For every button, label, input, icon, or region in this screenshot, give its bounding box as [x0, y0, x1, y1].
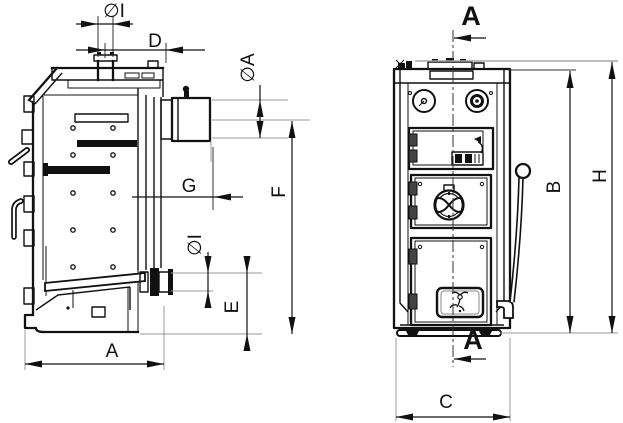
- dim-label-flue-offset: G: [182, 176, 197, 197]
- name-plate: [430, 71, 473, 79]
- air-intake-grille: [452, 152, 483, 165]
- front-view: [394, 30, 530, 367]
- hinge: [409, 249, 417, 264]
- section-marker-top: A: [461, 1, 481, 31]
- section-marker-bottom: A: [463, 325, 483, 355]
- vent-rosette-icon: [435, 185, 464, 220]
- ash-chamber: [36, 287, 130, 317]
- hinge: [409, 182, 417, 195]
- drain-elbow: [497, 301, 513, 318]
- control-knob-icon: [466, 90, 488, 112]
- dim-label-top-port-offset: D: [148, 31, 162, 52]
- dim-label-top-port-diameter: ∅I: [103, 1, 125, 22]
- middle-door: [409, 175, 491, 228]
- dim-label-depth: A: [106, 341, 119, 362]
- top-vent: [125, 73, 139, 78]
- dim-label-flue-height: F: [269, 186, 290, 198]
- heat-exchanger-baffles: [43, 114, 137, 176]
- air-vent-valve-icon: [396, 60, 412, 68]
- upper-door: [409, 128, 493, 169]
- front-wall: [25, 102, 138, 332]
- dim-label-width: C: [439, 392, 453, 413]
- dim-label-flue-diameter: ∅A: [238, 53, 259, 83]
- flue-collar: [428, 58, 472, 69]
- hinge: [409, 294, 417, 309]
- boiler-dimensional-drawing: ∅I D ∅A F G ∅I E A: [0, 0, 623, 423]
- side-view-dimensions: ∅I D ∅A F G ∅I E A: [25, 1, 310, 370]
- hinge: [409, 134, 417, 146]
- hinge: [409, 206, 417, 219]
- tube-holes: [71, 126, 115, 269]
- lower-door: [409, 238, 491, 325]
- front-view-dimensions: A A B H C: [396, 1, 618, 421]
- drawing-canvas: ∅I D ∅A F G ∅I E A: [0, 0, 623, 423]
- dim-label-return-height: E: [222, 301, 243, 314]
- front-fittings: [11, 96, 34, 304]
- dim-label-return-port-diameter: ∅I: [185, 234, 206, 256]
- ash-lever-handle: [512, 164, 530, 302]
- top-vent: [142, 73, 154, 78]
- hinge: [409, 150, 417, 162]
- flue-outlet: [161, 86, 211, 162]
- ash-pan: [92, 307, 105, 317]
- brand-emblem: [437, 288, 483, 317]
- dim-label-overall-height: H: [590, 169, 611, 183]
- damper-lever: [474, 136, 481, 143]
- return-pipe: [140, 268, 173, 296]
- thermometer-gauge-icon: [413, 90, 435, 112]
- dim-label-body-height: B: [544, 181, 565, 194]
